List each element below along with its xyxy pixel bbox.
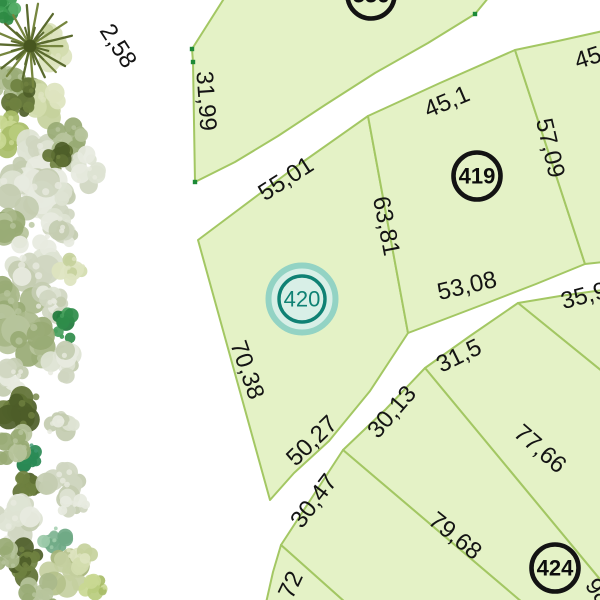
tree-cluster	[0, 0, 21, 25]
vertex-marker	[190, 47, 194, 51]
tree-cluster	[5, 234, 64, 291]
vegetation-strip	[0, 0, 108, 600]
parcels-layer	[192, 0, 600, 600]
plot-number: 336	[353, 0, 390, 8]
plot-marker-420-selected[interactable]: 420	[269, 266, 336, 333]
vertex-marker	[193, 180, 197, 184]
cadastral-map[interactable]: 2,5831,9955,0163,8145,157,094553,0835,93…	[0, 0, 600, 600]
vertex-marker	[473, 12, 477, 16]
dimension-label: 2,58	[94, 19, 142, 73]
plot-number: 419	[459, 164, 496, 189]
plot-number: 424	[537, 556, 574, 581]
tree-cluster	[52, 307, 78, 343]
plot-number: 420	[284, 287, 321, 312]
plot-map-canvas[interactable]: 2,5831,9955,0163,8145,157,094553,0835,93…	[0, 0, 600, 600]
dimension-label: 31,99	[190, 70, 221, 132]
tree-cluster	[44, 411, 80, 441]
vertex-marker	[191, 60, 195, 64]
